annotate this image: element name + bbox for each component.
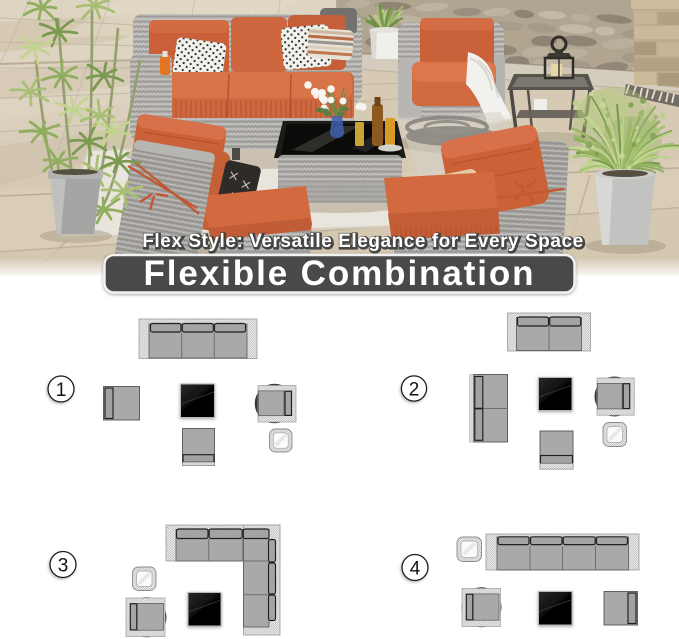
svg-text:Flexible Combination: Flexible Combination xyxy=(144,254,536,293)
svg-text:2: 2 xyxy=(409,379,420,400)
svg-text:1: 1 xyxy=(56,380,67,401)
svg-text:3: 3 xyxy=(58,555,69,576)
svg-text:4: 4 xyxy=(410,558,421,579)
svg-text:Flex Style: Versatile Elegance: Flex Style: Versatile Elegance for Every… xyxy=(142,231,583,252)
